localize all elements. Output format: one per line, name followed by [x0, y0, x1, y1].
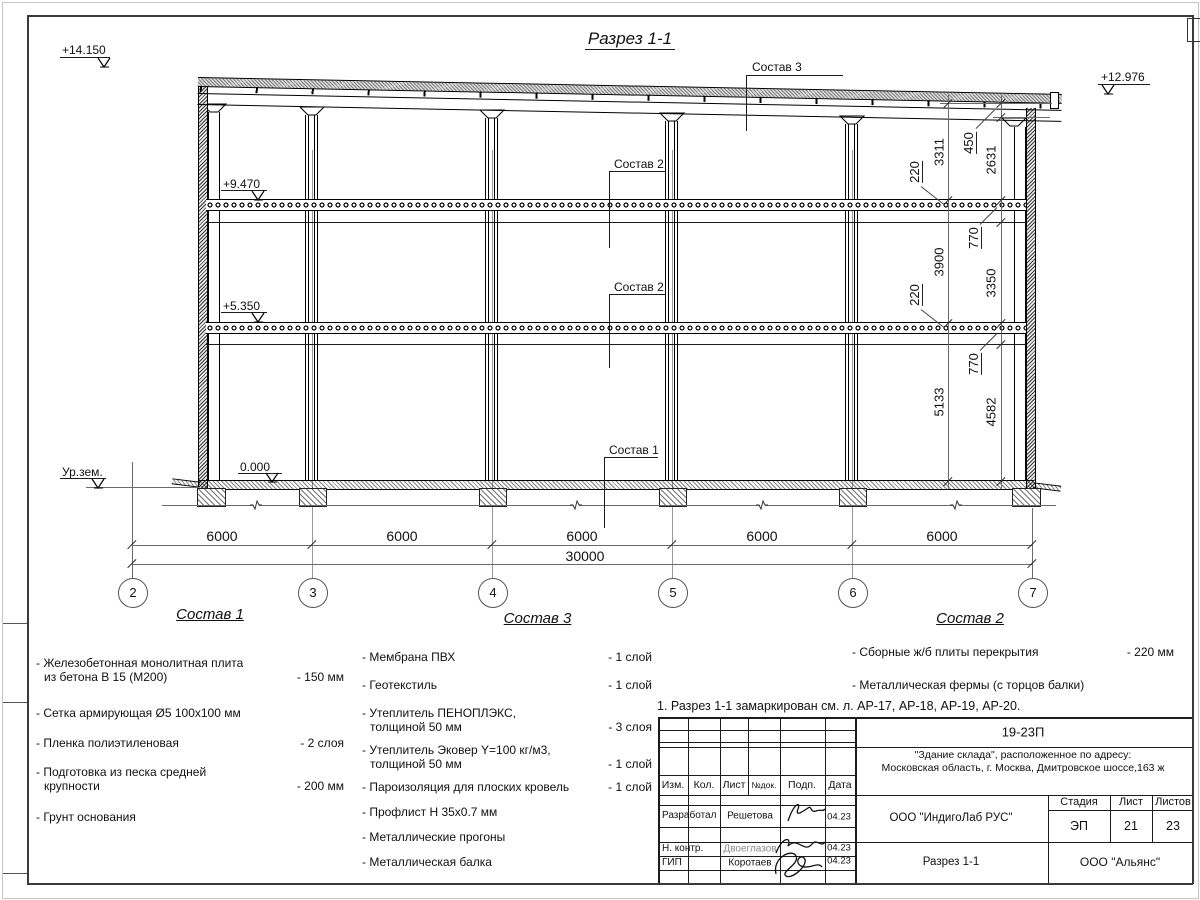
legend-item: - Железобетонная монолитная плитаиз бето…: [36, 656, 344, 684]
column: [845, 124, 858, 481]
dim-line-vertical: [1001, 95, 1002, 489]
col-header-podp: Подп.: [788, 779, 816, 791]
legend-item: - Пароизоляция для плоских кровель - 1 с…: [362, 780, 652, 794]
person-name: Коротаев: [728, 858, 771, 869]
legend-item: - Утеплитель ПЕНОПЛЭКС,толщиной 50 мм - …: [362, 706, 652, 734]
frame-margin-cell-line: [3, 623, 27, 624]
legend-sostav-1: - Железобетонная монолитная плитаиз бето…: [36, 656, 344, 824]
legend-item-value: - 200 мм: [297, 779, 344, 793]
elevation-label: +9.470: [223, 177, 260, 191]
legend-item-text2: толщиной 50 мм: [362, 720, 516, 734]
legend-item-value: - 2 слоя: [300, 736, 344, 750]
frame-margin-cell-line: [3, 873, 27, 874]
elevation-label: +5.350: [223, 299, 260, 313]
sign-date: 04.23: [827, 843, 851, 854]
col-header-kol: Кол.: [694, 779, 715, 791]
legend-item-text: - Утеплитель Эковер Y=100 кг/м3,: [362, 743, 551, 757]
legend-item-text2: из бетона В 15 (М200): [36, 670, 243, 684]
dim-label: 220: [907, 284, 923, 306]
col-header-ndok: №док.: [752, 780, 777, 790]
ground-level-label: Ур.зем.: [62, 465, 103, 479]
frame-top: [27, 15, 1193, 17]
legend-item-text: - Сетка армирующая Ø5 100x100 мм: [36, 706, 241, 720]
callout-underline: [746, 75, 843, 76]
legend-item: - Металлическая фермы (с торцов балки): [852, 678, 1174, 692]
titleblock-line: [1048, 810, 1192, 811]
callout-leader: [609, 171, 610, 248]
dim-label: 770: [966, 353, 982, 375]
titleblock-line: [720, 717, 721, 883]
callout-underline: [609, 171, 665, 172]
role-label: Разработал: [662, 810, 716, 821]
person-name: Двоеглазов: [723, 844, 776, 855]
dim-label: 6000: [926, 528, 957, 544]
titleblock-line: [855, 717, 857, 883]
dim-label: 3350: [984, 269, 999, 298]
legend-item-text: - Профлист Н 35х0.7 мм: [362, 805, 497, 819]
dim-line-bays: [132, 545, 1032, 546]
col-header-list: Лист: [723, 779, 746, 791]
grid-bubble: 4: [478, 578, 508, 608]
elevation-label: +14.150: [62, 43, 106, 57]
dim-label: 3311: [932, 138, 947, 166]
legend-item-text: - Утеплитель ПЕНОПЛЭКС,: [362, 706, 516, 720]
floor-slab-level2: [206, 199, 1026, 211]
person-name: Решетова: [727, 811, 773, 822]
elevation-arrow-icon: [96, 57, 112, 68]
legend-title: Состав 1: [130, 606, 290, 623]
dim-label: 6000: [386, 528, 417, 544]
legend-title: Состав 3: [460, 610, 615, 627]
dim-label: 6000: [566, 528, 597, 544]
dim-label: 3900: [932, 248, 947, 277]
frame-left: [27, 15, 29, 884]
legend-item-text: - Металлическая фермы (с торцов балки): [852, 678, 1084, 692]
roof-end-plate: [1050, 92, 1059, 109]
legend-item-text: - Мембрана ПВХ: [362, 650, 455, 664]
dim-label: 2631: [984, 146, 999, 175]
grid-bubble: 2: [118, 578, 148, 608]
elevation-arrow-icon: [1100, 84, 1116, 95]
break-mark-icon: [950, 499, 962, 511]
callout-label: Состав 2: [614, 280, 664, 294]
titleblock-line: [748, 717, 749, 795]
elevation-arrow-icon: [250, 312, 266, 323]
drawing-sheet: { "sheet": { "title": "Разрез 1-1", "not…: [0, 0, 1200, 900]
beam-flange-line: [206, 222, 1026, 223]
titleblock-line: [658, 795, 1192, 796]
callout-label: Состав 2: [614, 157, 664, 171]
dim-line-total: [132, 564, 1032, 565]
legend-item: - Мембрана ПВХ - 1 слой: [362, 650, 652, 664]
wall-post: [1014, 127, 1026, 481]
legend-item-text: - Грунт основания: [36, 810, 136, 824]
callout-underline: [609, 294, 665, 295]
dim-label: 450: [961, 132, 977, 154]
top-corner-doc-box: [1187, 18, 1200, 42]
legend-item-value: - 1 слой: [608, 757, 652, 771]
legend-item-text: - Подготовка из песка средней: [36, 765, 206, 779]
floor-slab-level1: [206, 322, 1026, 334]
sheets-total: 23: [1166, 819, 1180, 833]
role-label: Н. контр.: [662, 843, 703, 854]
column: [665, 121, 678, 481]
legend-item: - Профлист Н 35х0.7 мм: [362, 805, 652, 819]
legend-item: - Грунт основания: [36, 810, 344, 824]
signature: [784, 799, 826, 827]
titleblock-line: [658, 747, 1192, 748]
grid-bubble: 7: [1018, 578, 1048, 608]
sheet-header: Лист: [1119, 796, 1143, 808]
extension-line: [940, 103, 1052, 104]
callout-underline: [604, 457, 658, 458]
titleblock-border: [658, 717, 1192, 719]
dim-label: 5133: [932, 388, 947, 417]
column: [305, 115, 318, 481]
column: [485, 118, 498, 481]
beam-flange-line: [206, 344, 1026, 345]
legend-item-value: - 220 мм: [1127, 645, 1174, 659]
left-wall: [198, 78, 208, 488]
frame-bottom: [27, 883, 1193, 885]
sign-date: 04.23: [827, 812, 851, 823]
callout-leader: [746, 75, 747, 131]
legend-sostav-2: - Сборные ж/б плиты перекрытия - 220 мм …: [852, 645, 1174, 692]
legend-item: - Подготовка из песка среднейкрупности -…: [36, 765, 344, 793]
note-text: 1. Разрез 1-1 замаркирован см. л. АР-17,…: [657, 699, 1020, 713]
legend-item-text: - Пленка полиэтиленовая: [36, 736, 179, 750]
dim-label: 6000: [746, 528, 777, 544]
elevation-arrow-icon: [250, 190, 266, 201]
project-address-line1: "Здание склада", расположенное по адресу…: [915, 749, 1132, 761]
legend-item-text: - Пароизоляция для плоских кровель: [362, 780, 569, 794]
break-mark-icon: [756, 499, 768, 511]
legend-item-text: - Металлическая балка: [362, 855, 492, 869]
legend-item: - Металлическая балка: [362, 855, 652, 869]
legend-item: - Сетка армирующая Ø5 100x100 мм: [36, 706, 344, 720]
right-wall: [1026, 108, 1036, 488]
legend-item-text: - Металлические прогоны: [362, 830, 505, 844]
elevation-arrow-icon: [90, 478, 106, 489]
company-name: ООО "ИндигоЛаб РУС": [889, 812, 1012, 824]
stage-value: ЭП: [1070, 819, 1088, 833]
legend-item-text2: крупности: [36, 779, 206, 793]
titleblock-line: [1110, 795, 1111, 843]
sheets-total-header: Листов: [1155, 796, 1191, 808]
legend-title: Состав 2: [895, 610, 1045, 627]
legend-item-text2: толщиной 50 мм: [362, 757, 551, 771]
legend-item-value: - 150 мм: [297, 670, 344, 684]
grid-bubble: 3: [298, 578, 328, 608]
frame-margin-cell-line: [3, 702, 27, 703]
legend-item-value: - 1 слой: [608, 780, 652, 794]
legend-item: - Пленка полиэтиленовая - 2 слоя: [36, 736, 344, 750]
legend-item-text: - Сборные ж/б плиты перекрытия: [852, 645, 1038, 659]
legend-item-value: - 3 слоя: [608, 720, 652, 734]
dim-label: 770: [966, 227, 982, 249]
dim-label: 4582: [984, 398, 999, 427]
legend-item: - Сборные ж/б плиты перекрытия - 220 мм: [852, 645, 1174, 659]
stage-header: Стадия: [1060, 796, 1098, 808]
break-mark-icon: [250, 499, 262, 511]
titleblock-line: [1152, 795, 1153, 843]
titleblock-line: [688, 717, 689, 883]
project-address-line2: Московская область, г. Москва, Дмитровск…: [882, 762, 1165, 774]
dim-label: 220: [907, 161, 923, 183]
legend-item-value: - 1 слой: [608, 650, 652, 664]
grid-bubble: 6: [838, 578, 868, 608]
col-header-izm: Изм.: [662, 779, 685, 791]
grid-bubble: 5: [658, 578, 688, 608]
frame-right: [1192, 15, 1194, 884]
wall-post: [208, 112, 220, 481]
page-title: Разрез 1-1: [588, 29, 672, 49]
page-title-underline: [585, 49, 675, 50]
legend-item: - Металлические прогоны: [362, 830, 652, 844]
legend-sostav-3: - Мембрана ПВХ - 1 слой - Геотекстиль - …: [362, 650, 652, 869]
legend-item: - Утеплитель Эковер Y=100 кг/м3,толщиной…: [362, 743, 652, 771]
dim-line-vertical: [948, 95, 949, 489]
sheet-number: 21: [1124, 819, 1138, 833]
doc-number: 19-23П: [1002, 725, 1045, 740]
signature: [770, 846, 826, 880]
elevation-label: +12.976: [1101, 70, 1145, 84]
contractor-name: ООО "Альянс": [1080, 855, 1160, 869]
legend-item-value: - 1 слой: [608, 678, 652, 692]
callout-label: Состав 3: [752, 60, 802, 74]
break-mark-icon: [570, 499, 582, 511]
role-label: ГИП: [662, 857, 682, 868]
legend-item: - Геотекстиль - 1 слой: [362, 678, 652, 692]
dim-label-total: 30000: [566, 548, 605, 564]
dim-label: 6000: [206, 528, 237, 544]
legend-item-text: - Геотекстиль: [362, 678, 437, 692]
callout-leader: [604, 457, 605, 528]
elevation-arrow-icon: [264, 472, 280, 483]
legend-item-text: - Железобетонная монолитная плита: [36, 656, 243, 670]
titleblock-line: [1048, 795, 1049, 883]
callout-leader: [609, 294, 610, 368]
sign-date: 04.23: [827, 856, 851, 867]
foundation-line: [162, 505, 1056, 506]
drawing-title: Разрез 1-1: [923, 856, 979, 868]
callout-label: Состав 1: [609, 443, 659, 457]
col-header-data: Дата: [828, 779, 851, 791]
